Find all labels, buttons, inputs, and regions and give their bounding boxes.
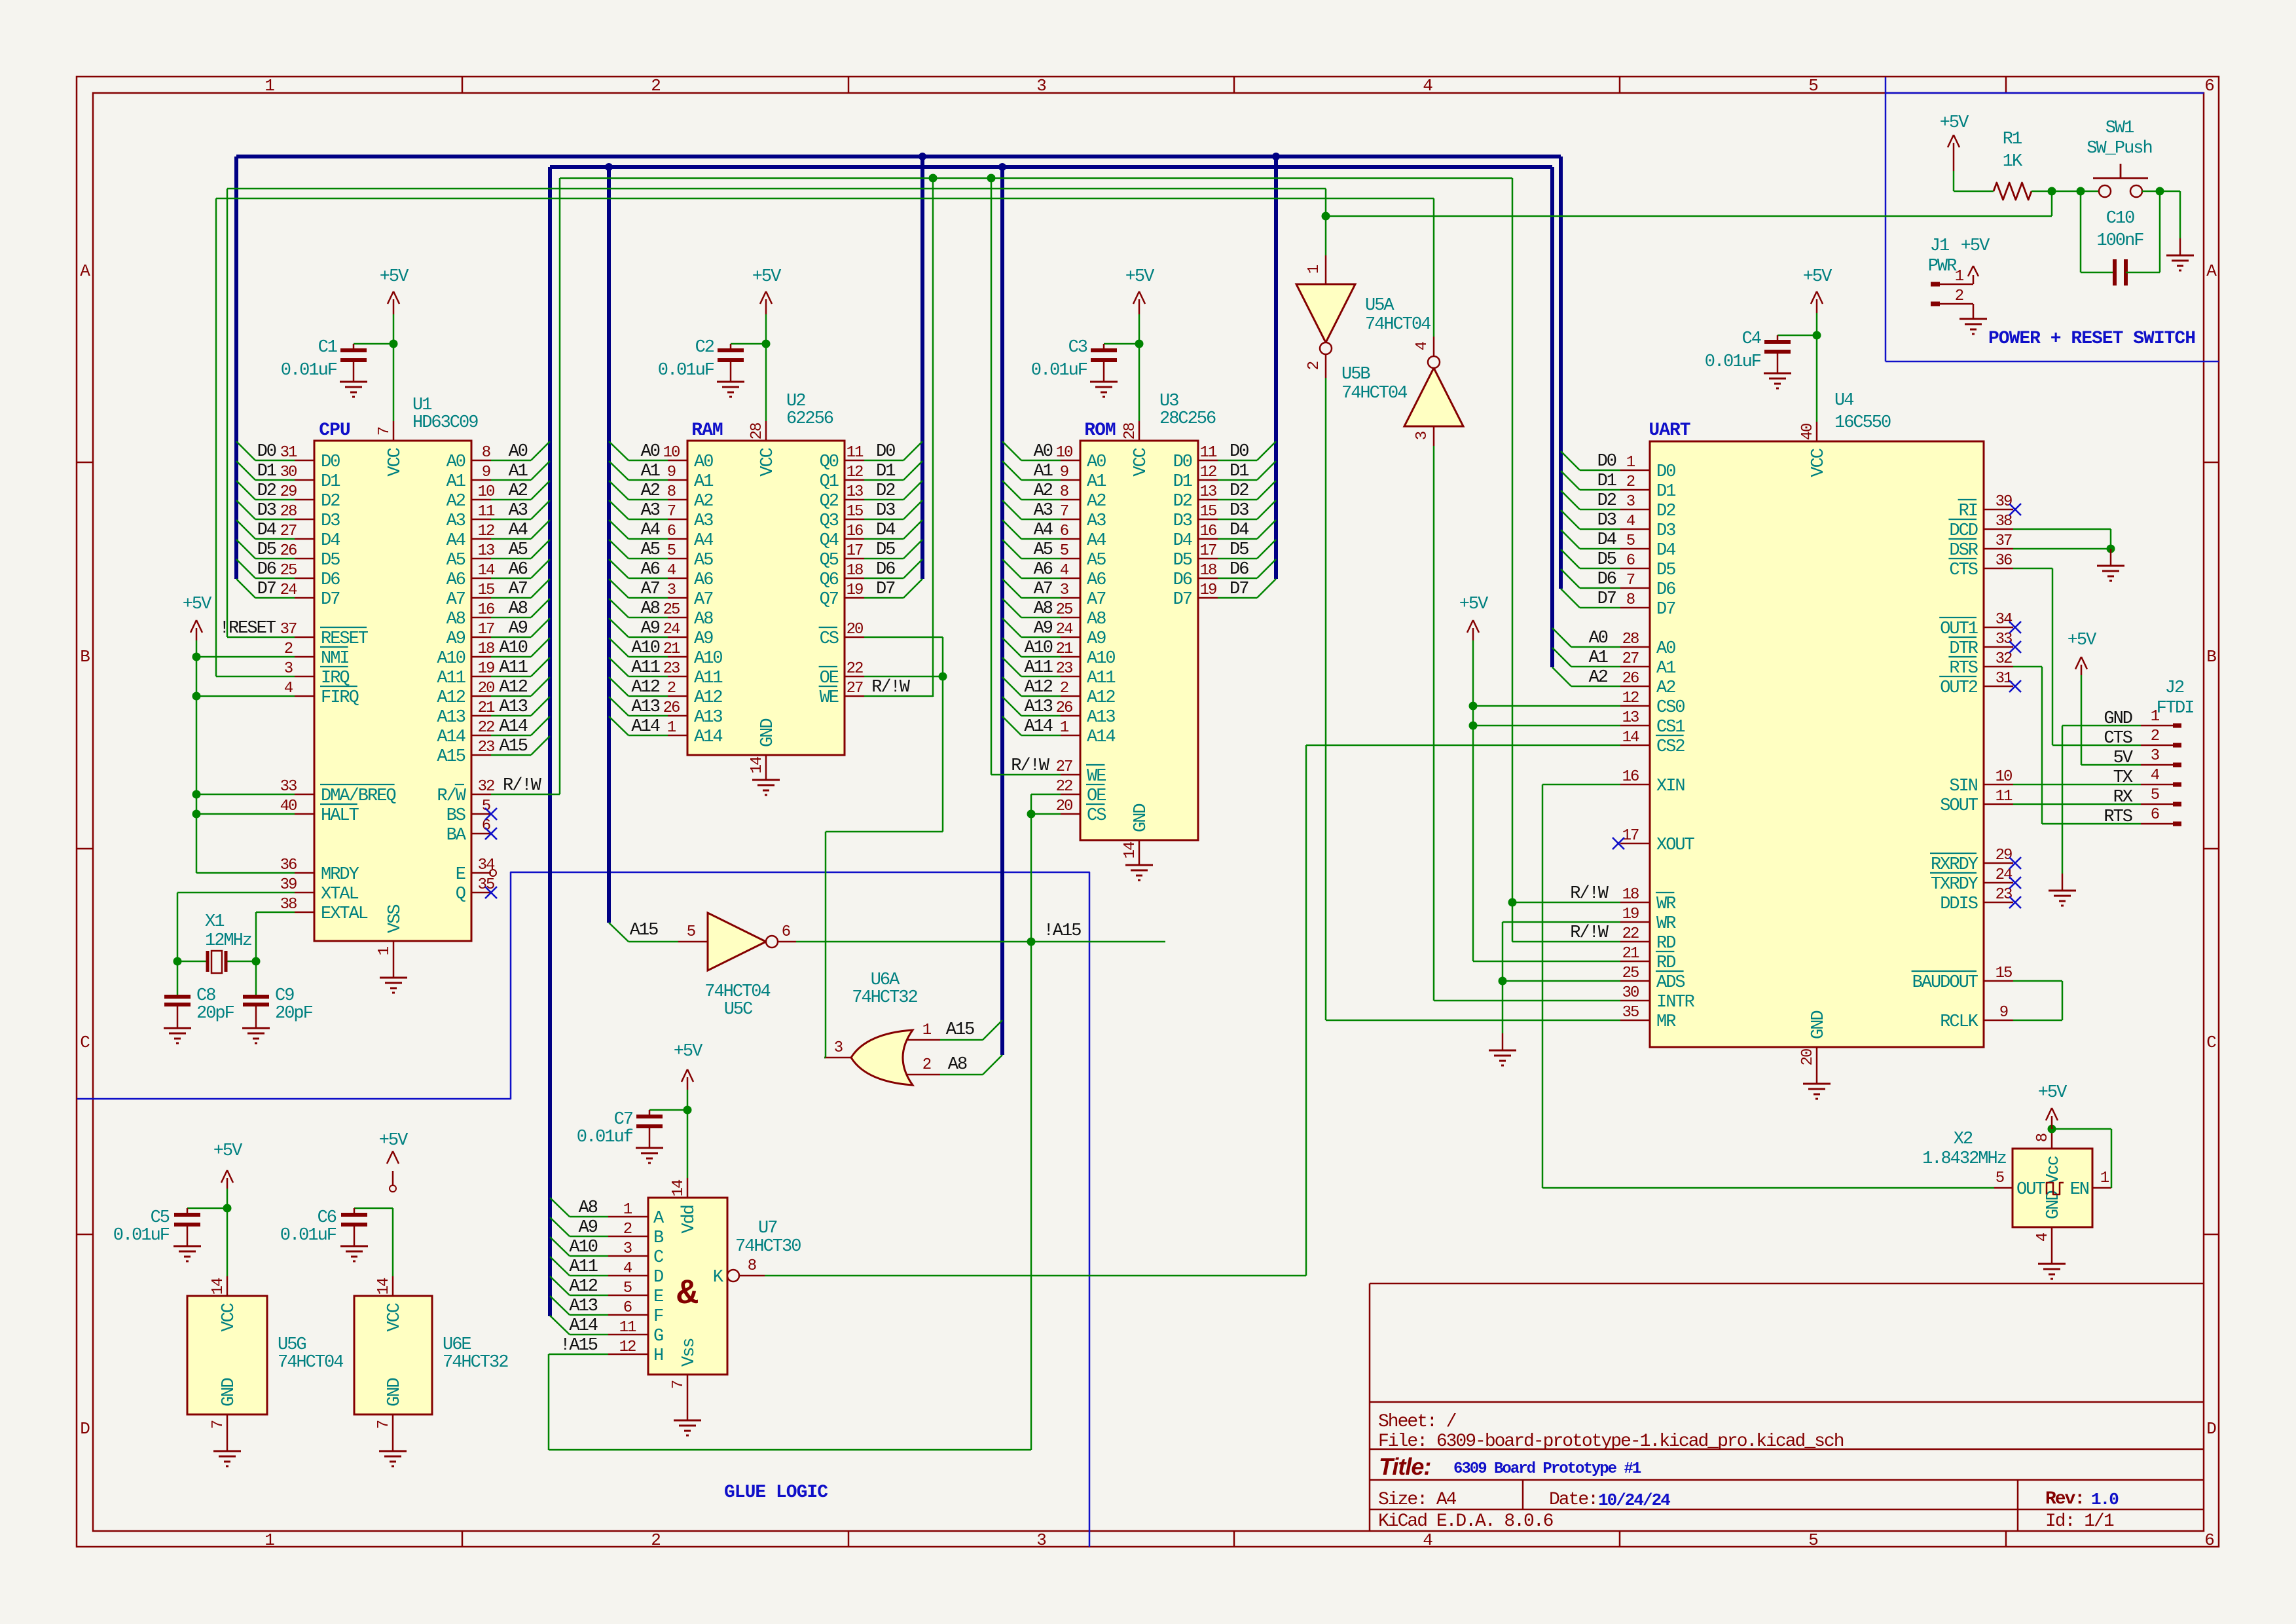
svg-text:D3: D3 xyxy=(1656,521,1675,541)
svg-text:5: 5 xyxy=(667,542,676,560)
svg-text:25: 25 xyxy=(663,601,680,619)
svg-text:OUT2: OUT2 xyxy=(1940,678,1978,698)
svg-text:18: 18 xyxy=(1622,886,1639,904)
svg-text:A12: A12 xyxy=(499,678,527,697)
svg-text:A1: A1 xyxy=(694,472,713,492)
svg-text:H: H xyxy=(653,1346,663,1366)
svg-text:20: 20 xyxy=(1799,1049,1817,1065)
svg-text:WR: WR xyxy=(1656,895,1676,914)
svg-text:D0: D0 xyxy=(1230,442,1248,462)
svg-text:0.01uF: 0.01uF xyxy=(280,1226,337,1246)
svg-text:4: 4 xyxy=(2151,767,2160,784)
svg-text:D1: D1 xyxy=(1173,472,1192,492)
svg-text:30: 30 xyxy=(1622,984,1639,1002)
svg-text:1: 1 xyxy=(922,1022,932,1039)
svg-text:10: 10 xyxy=(478,483,494,501)
svg-text:D6: D6 xyxy=(257,560,276,580)
svg-text:5: 5 xyxy=(1060,542,1068,560)
svg-text:12: 12 xyxy=(1622,690,1639,707)
svg-text:CS1: CS1 xyxy=(1656,718,1685,737)
svg-text:R/!W: R/!W xyxy=(1011,756,1050,776)
svg-text:GND: GND xyxy=(1131,804,1151,832)
svg-text:Id: 1/1: Id: 1/1 xyxy=(2045,1511,2114,1532)
svg-text:GND: GND xyxy=(1809,1011,1829,1039)
svg-text:D5: D5 xyxy=(257,540,276,560)
svg-text:5: 5 xyxy=(1808,76,1817,96)
svg-text:35: 35 xyxy=(1622,1004,1639,1022)
svg-text:D4: D4 xyxy=(876,521,895,540)
svg-text:17: 17 xyxy=(1622,827,1639,845)
svg-text:D0: D0 xyxy=(1597,452,1616,471)
svg-text:File: 6309-board-prototype-1.k: File: 6309-board-prototype-1.kicad_pro.k… xyxy=(1378,1431,1844,1452)
svg-text:A2: A2 xyxy=(446,492,465,511)
svg-text:A8: A8 xyxy=(509,599,528,619)
svg-text:D1: D1 xyxy=(1656,482,1675,502)
svg-text:WE: WE xyxy=(820,688,839,708)
svg-text:D2: D2 xyxy=(321,492,340,511)
svg-text:C5: C5 xyxy=(151,1208,170,1228)
svg-text:36: 36 xyxy=(280,857,297,874)
svg-text:A1: A1 xyxy=(1087,472,1106,492)
svg-text:CS: CS xyxy=(820,629,839,649)
svg-text:C1: C1 xyxy=(318,338,337,358)
svg-text:A0: A0 xyxy=(1034,442,1053,462)
svg-text:U4: U4 xyxy=(1834,391,1853,411)
svg-text:Title:: Title: xyxy=(1379,1453,1430,1480)
svg-text:2: 2 xyxy=(1626,473,1635,491)
svg-text:A1: A1 xyxy=(446,472,465,492)
svg-text:10/24/24: 10/24/24 xyxy=(1598,1490,1670,1510)
svg-text:17: 17 xyxy=(1200,542,1216,560)
svg-text:Vss: Vss xyxy=(680,1338,699,1367)
svg-text:74HCT04: 74HCT04 xyxy=(1341,384,1407,403)
svg-text:7: 7 xyxy=(667,503,676,521)
svg-text:C2: C2 xyxy=(695,338,714,358)
svg-text:D2: D2 xyxy=(1597,491,1616,511)
svg-text:U3: U3 xyxy=(1159,392,1178,411)
svg-text:U6E: U6E xyxy=(443,1335,471,1355)
svg-text:A9: A9 xyxy=(1087,629,1106,649)
svg-text:1: 1 xyxy=(376,946,393,955)
svg-text:D0: D0 xyxy=(876,442,895,462)
svg-text:!RESET: !RESET xyxy=(219,619,276,638)
svg-text:U5B: U5B xyxy=(1341,365,1370,384)
svg-text:A3: A3 xyxy=(1087,511,1106,531)
svg-text:22: 22 xyxy=(478,719,494,737)
svg-text:A2: A2 xyxy=(1034,481,1053,501)
svg-text:+5V: +5V xyxy=(380,267,409,287)
svg-text:U5G: U5G xyxy=(278,1335,306,1355)
svg-text:15: 15 xyxy=(478,581,494,599)
svg-text:SOUT: SOUT xyxy=(1940,796,1978,816)
svg-text:D5: D5 xyxy=(1230,540,1248,560)
svg-text:A6: A6 xyxy=(446,570,465,590)
svg-text:A10: A10 xyxy=(1024,638,1052,658)
svg-text:POWER + RESET SWITCH: POWER + RESET SWITCH xyxy=(1988,329,2195,349)
svg-text:A7: A7 xyxy=(641,580,660,599)
svg-text:A10: A10 xyxy=(569,1238,597,1257)
svg-text:PWR: PWR xyxy=(1928,257,1957,276)
svg-text:6: 6 xyxy=(2204,76,2214,96)
svg-text:D0: D0 xyxy=(321,452,340,472)
svg-text:D7: D7 xyxy=(876,580,895,599)
svg-text:2: 2 xyxy=(1955,287,1963,305)
svg-text:A4: A4 xyxy=(641,521,660,540)
svg-text:CS0: CS0 xyxy=(1656,698,1685,718)
svg-text:BAUDOUT: BAUDOUT xyxy=(1912,973,1978,993)
svg-text:DDIS: DDIS xyxy=(1940,895,1978,914)
svg-text:A5: A5 xyxy=(446,551,465,570)
svg-text:A15: A15 xyxy=(630,921,658,940)
svg-text:20: 20 xyxy=(1056,798,1072,815)
svg-text:A14: A14 xyxy=(1087,728,1115,747)
svg-text:MR: MR xyxy=(1656,1012,1676,1032)
svg-text:D2: D2 xyxy=(1656,502,1675,521)
svg-text:A0: A0 xyxy=(641,442,660,462)
svg-text:A1: A1 xyxy=(641,462,660,481)
svg-text:+5V: +5V xyxy=(213,1141,243,1161)
svg-text:XIN: XIN xyxy=(1656,777,1685,796)
svg-text:20: 20 xyxy=(847,621,863,638)
svg-text:Size: A4: Size: A4 xyxy=(1378,1490,1457,1510)
svg-text:D7: D7 xyxy=(257,580,276,599)
svg-text:GND: GND xyxy=(385,1378,405,1407)
svg-text:+5V: +5V xyxy=(674,1042,703,1061)
svg-text:A: A xyxy=(2206,261,2217,281)
svg-text:12: 12 xyxy=(1200,464,1216,481)
svg-text:D4: D4 xyxy=(1173,531,1192,551)
svg-text:A10: A10 xyxy=(499,638,527,658)
svg-text:A14: A14 xyxy=(569,1316,597,1336)
svg-text:A14: A14 xyxy=(631,717,659,737)
svg-text:+5V: +5V xyxy=(752,267,782,287)
svg-text:22: 22 xyxy=(1622,925,1639,943)
svg-text:D4: D4 xyxy=(1230,521,1248,540)
svg-text:INTR: INTR xyxy=(1656,993,1695,1012)
svg-text:A7: A7 xyxy=(694,590,713,610)
svg-text:4: 4 xyxy=(284,680,293,697)
svg-text:CS: CS xyxy=(1087,806,1106,826)
svg-text:9: 9 xyxy=(482,464,490,481)
svg-text:D6: D6 xyxy=(321,570,340,590)
svg-text:X2: X2 xyxy=(1954,1130,1973,1149)
svg-text:4: 4 xyxy=(2034,1232,2052,1242)
svg-text:24: 24 xyxy=(1056,621,1073,638)
svg-text:OUT1: OUT1 xyxy=(1940,619,1978,639)
svg-text:74HCT04: 74HCT04 xyxy=(704,982,770,1002)
svg-text:1: 1 xyxy=(2100,1170,2109,1187)
svg-text:3: 3 xyxy=(623,1240,632,1258)
svg-text:12: 12 xyxy=(619,1338,636,1356)
svg-text:13: 13 xyxy=(478,542,494,560)
svg-text:D6: D6 xyxy=(1656,580,1675,600)
svg-text:A7: A7 xyxy=(1087,590,1106,610)
svg-text:3: 3 xyxy=(1036,76,1046,96)
svg-text:1: 1 xyxy=(1955,268,1964,286)
svg-text:A0: A0 xyxy=(1087,452,1106,472)
svg-text:9: 9 xyxy=(1999,1004,2008,1022)
svg-text:27: 27 xyxy=(847,680,863,697)
svg-text:D7: D7 xyxy=(321,590,340,610)
svg-text:D2: D2 xyxy=(1173,492,1192,511)
svg-text:14: 14 xyxy=(375,1278,393,1295)
svg-text:A10: A10 xyxy=(694,649,722,669)
svg-text:20pF: 20pF xyxy=(196,1004,234,1024)
svg-text:27: 27 xyxy=(280,523,297,540)
svg-text:A5: A5 xyxy=(1087,551,1106,570)
svg-text:12: 12 xyxy=(478,523,494,540)
svg-text:C: C xyxy=(80,1033,90,1052)
svg-text:32: 32 xyxy=(478,778,494,796)
svg-text:DMA/BREQ: DMA/BREQ xyxy=(321,786,395,806)
svg-text:40: 40 xyxy=(1799,424,1817,440)
svg-text:VSS: VSS xyxy=(386,905,405,933)
svg-text:Q2: Q2 xyxy=(820,492,839,511)
svg-text:A3: A3 xyxy=(1034,501,1053,521)
svg-text:D1: D1 xyxy=(257,462,276,481)
svg-text:0.01uf: 0.01uf xyxy=(577,1128,633,1147)
svg-text:U7: U7 xyxy=(758,1219,777,1238)
svg-text:E: E xyxy=(653,1287,663,1307)
svg-text:A12: A12 xyxy=(437,688,465,708)
svg-text:R/!W: R/!W xyxy=(871,678,911,697)
svg-text:14: 14 xyxy=(478,562,495,580)
svg-text:A8: A8 xyxy=(948,1055,967,1075)
svg-text:A11: A11 xyxy=(1087,669,1115,688)
svg-text:39: 39 xyxy=(280,876,297,894)
svg-text:A13: A13 xyxy=(694,708,722,728)
svg-text:A4: A4 xyxy=(509,521,528,540)
svg-text:2: 2 xyxy=(651,1530,660,1550)
svg-text:D2: D2 xyxy=(257,481,276,501)
svg-text:33: 33 xyxy=(280,778,297,796)
svg-text:8: 8 xyxy=(667,483,676,501)
svg-text:A12: A12 xyxy=(1024,678,1052,697)
svg-text:D6: D6 xyxy=(1173,570,1192,590)
svg-text:A12: A12 xyxy=(1087,688,1115,708)
svg-text:R/!W: R/!W xyxy=(1570,923,1609,943)
svg-text:36: 36 xyxy=(1995,552,2012,570)
svg-text:D: D xyxy=(2206,1419,2216,1439)
svg-text:23: 23 xyxy=(478,739,494,756)
svg-text:SIN: SIN xyxy=(1949,777,1977,796)
svg-text:26: 26 xyxy=(1056,699,1072,717)
svg-text:8: 8 xyxy=(748,1257,756,1275)
svg-text:A6: A6 xyxy=(509,560,528,580)
svg-text:X1: X1 xyxy=(205,912,224,932)
svg-text:C7: C7 xyxy=(614,1110,633,1130)
svg-text:Q0: Q0 xyxy=(820,452,839,472)
svg-text:24: 24 xyxy=(663,621,680,638)
svg-text:40: 40 xyxy=(280,798,297,815)
svg-text:A14: A14 xyxy=(499,717,527,737)
svg-text:16: 16 xyxy=(1200,523,1216,540)
svg-text:EXTAL: EXTAL xyxy=(321,904,368,924)
svg-text:D2: D2 xyxy=(876,481,895,501)
svg-text:RTS: RTS xyxy=(1949,659,1977,678)
svg-text:U2: U2 xyxy=(786,392,805,411)
svg-text:A11: A11 xyxy=(569,1257,597,1277)
svg-text:39: 39 xyxy=(1995,493,2012,511)
svg-text:A12: A12 xyxy=(569,1277,597,1297)
svg-text:37: 37 xyxy=(1995,532,2012,550)
svg-text:1: 1 xyxy=(1305,265,1323,274)
svg-text:GND: GND xyxy=(758,719,778,747)
svg-text:28C256: 28C256 xyxy=(1159,409,1216,429)
svg-text:74HCT04: 74HCT04 xyxy=(278,1353,343,1373)
svg-text:HALT: HALT xyxy=(321,806,359,826)
svg-text:A10: A10 xyxy=(437,649,465,669)
svg-text:D5: D5 xyxy=(1173,551,1192,570)
svg-text:GLUE LOGIC: GLUE LOGIC xyxy=(724,1483,828,1503)
svg-text:D3: D3 xyxy=(1173,511,1192,531)
svg-text:3: 3 xyxy=(1626,493,1635,511)
svg-text:D7: D7 xyxy=(1173,590,1192,610)
svg-text:Q: Q xyxy=(456,885,465,904)
svg-text:A9: A9 xyxy=(446,629,465,649)
svg-text:CTS: CTS xyxy=(2104,729,2132,748)
svg-text:A7: A7 xyxy=(446,590,465,610)
svg-text:+5V: +5V xyxy=(379,1131,409,1151)
svg-text:D1: D1 xyxy=(1597,471,1616,491)
svg-text:A1: A1 xyxy=(1034,462,1053,481)
svg-text:0.01uF: 0.01uF xyxy=(1705,352,1761,372)
svg-text:4: 4 xyxy=(1060,562,1069,580)
svg-text:3: 3 xyxy=(284,660,293,678)
svg-text:A: A xyxy=(80,261,90,281)
svg-text:A11: A11 xyxy=(437,669,465,688)
svg-text:A3: A3 xyxy=(509,501,528,521)
svg-text:6: 6 xyxy=(623,1299,632,1317)
svg-text:5: 5 xyxy=(1995,1170,2004,1187)
svg-text:A5: A5 xyxy=(694,551,713,570)
svg-text:A2: A2 xyxy=(1087,492,1106,511)
svg-text:A9: A9 xyxy=(1034,619,1053,638)
svg-text:MRDY: MRDY xyxy=(321,865,359,885)
svg-text:5: 5 xyxy=(1626,532,1635,550)
svg-text:Q7: Q7 xyxy=(820,590,839,610)
svg-text:D5: D5 xyxy=(321,551,340,570)
svg-text:RD: RD xyxy=(1656,953,1675,973)
svg-text:U6A: U6A xyxy=(871,970,900,990)
svg-text:XTAL: XTAL xyxy=(321,885,359,904)
svg-text:+5V: +5V xyxy=(183,595,212,614)
svg-text:A2: A2 xyxy=(1589,668,1608,688)
svg-text:A5: A5 xyxy=(641,540,660,560)
svg-text:A8: A8 xyxy=(1087,610,1106,629)
svg-text:Q3: Q3 xyxy=(820,511,839,531)
svg-text:16: 16 xyxy=(478,601,494,619)
svg-text:1.8432MHz: 1.8432MHz xyxy=(1922,1149,2007,1169)
svg-text:BA: BA xyxy=(446,826,467,845)
svg-text:A1: A1 xyxy=(509,462,528,481)
svg-text:B: B xyxy=(2206,647,2216,667)
svg-text:13: 13 xyxy=(1200,483,1216,501)
svg-text:15: 15 xyxy=(1200,503,1216,521)
svg-text:A7: A7 xyxy=(1034,580,1053,599)
svg-text:+5V: +5V xyxy=(2068,631,2097,650)
svg-text:16: 16 xyxy=(1622,768,1639,786)
svg-text:19: 19 xyxy=(478,660,494,678)
svg-text:D: D xyxy=(80,1419,90,1439)
svg-text:2: 2 xyxy=(1060,680,1068,697)
svg-text:RI: RI xyxy=(1959,502,1977,521)
svg-text:A6: A6 xyxy=(1087,570,1106,590)
svg-text:D4: D4 xyxy=(1597,530,1616,550)
svg-text:11: 11 xyxy=(847,444,864,462)
svg-text:A14: A14 xyxy=(1024,717,1052,737)
svg-text:21: 21 xyxy=(478,699,495,717)
svg-text:27: 27 xyxy=(1056,758,1072,776)
svg-text:2: 2 xyxy=(2151,728,2159,745)
svg-text:R/!W: R/!W xyxy=(503,776,542,796)
svg-text:C: C xyxy=(653,1248,664,1268)
svg-text:16C550: 16C550 xyxy=(1834,413,1891,433)
svg-text:22: 22 xyxy=(847,660,863,678)
svg-text:B: B xyxy=(653,1228,664,1248)
svg-text:7: 7 xyxy=(376,427,393,435)
svg-text:F: F xyxy=(653,1307,663,1327)
svg-text:9: 9 xyxy=(1060,464,1068,481)
svg-text:A8: A8 xyxy=(1034,599,1053,619)
svg-text:D1: D1 xyxy=(1230,462,1248,481)
svg-text:19: 19 xyxy=(847,581,863,599)
svg-text:8: 8 xyxy=(1626,591,1635,609)
svg-text:DTR: DTR xyxy=(1949,639,1978,659)
svg-text:TX: TX xyxy=(2113,768,2133,788)
svg-text:A7: A7 xyxy=(509,580,528,599)
svg-text:VCC: VCC xyxy=(385,1302,405,1331)
svg-text:23: 23 xyxy=(1056,660,1072,678)
svg-text:4: 4 xyxy=(1626,513,1635,530)
svg-text:A11: A11 xyxy=(694,669,722,688)
svg-text:RXRDY: RXRDY xyxy=(1931,855,1978,875)
svg-text:D3: D3 xyxy=(321,511,340,531)
svg-text:13: 13 xyxy=(1622,709,1639,727)
svg-text:RX: RX xyxy=(2113,788,2133,807)
svg-text:A0: A0 xyxy=(1589,629,1608,648)
svg-text:D0: D0 xyxy=(1173,452,1192,472)
svg-text:RCLK: RCLK xyxy=(1940,1012,1979,1032)
svg-text:A4: A4 xyxy=(1087,531,1106,551)
svg-text:A0: A0 xyxy=(694,452,713,472)
svg-text:11: 11 xyxy=(619,1319,636,1337)
svg-text:38: 38 xyxy=(280,896,297,913)
svg-text:15: 15 xyxy=(1995,965,2012,982)
svg-text:A6: A6 xyxy=(694,570,713,590)
svg-text:D2: D2 xyxy=(1230,481,1248,501)
svg-text:29: 29 xyxy=(1995,847,2012,864)
svg-text:2: 2 xyxy=(667,680,676,697)
svg-text:D4: D4 xyxy=(257,521,276,540)
svg-text:12: 12 xyxy=(847,464,863,481)
svg-text:6309 Board Prototype #1: 6309 Board Prototype #1 xyxy=(1453,1460,1641,1478)
svg-text:24: 24 xyxy=(280,581,297,599)
svg-text:15: 15 xyxy=(847,503,863,521)
svg-text:17: 17 xyxy=(478,621,494,638)
svg-text:Sheet: /: Sheet: / xyxy=(1378,1412,1457,1432)
svg-text:D6: D6 xyxy=(876,560,895,580)
svg-text:Q4: Q4 xyxy=(820,531,839,551)
svg-text:34: 34 xyxy=(478,857,495,874)
svg-text:A11: A11 xyxy=(1024,658,1052,678)
svg-text:VCC: VCC xyxy=(386,447,405,476)
svg-text:FTDI: FTDI xyxy=(2157,699,2194,718)
svg-text:7: 7 xyxy=(210,1420,227,1429)
svg-text:A1: A1 xyxy=(1656,659,1675,678)
svg-text:8: 8 xyxy=(1060,483,1068,501)
svg-text:D3: D3 xyxy=(1230,501,1248,521)
